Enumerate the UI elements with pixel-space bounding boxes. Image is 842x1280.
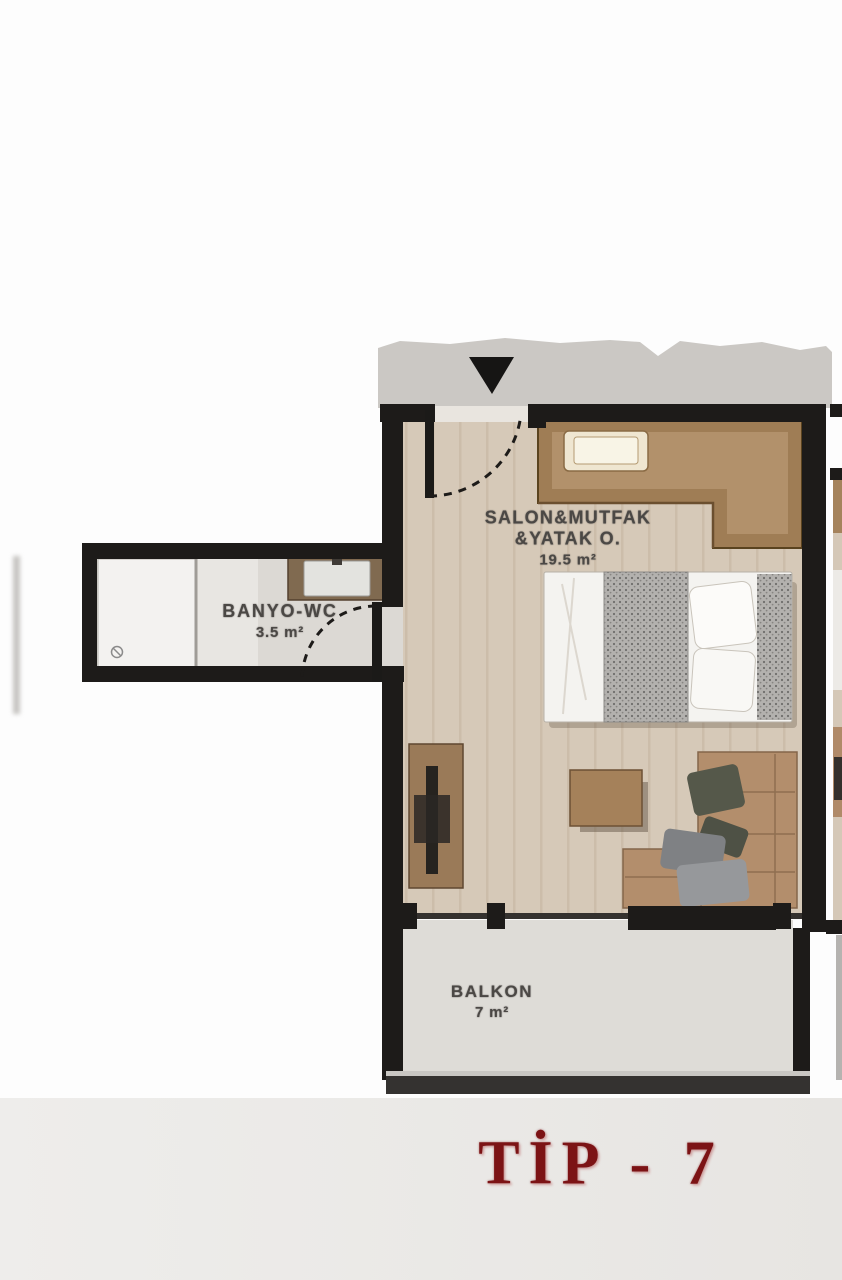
balcony-post <box>773 903 791 929</box>
bathroom-door-leaf <box>372 602 382 682</box>
wall-stub-right-mid <box>830 468 842 480</box>
living-room-name2: &YATAK O. <box>485 529 652 550</box>
wall-stub-right-low <box>826 920 842 934</box>
balcony-rail <box>386 1076 810 1094</box>
balcony-post <box>403 903 417 929</box>
entry-threshold <box>434 406 528 422</box>
bathroom-wall-top <box>82 543 384 559</box>
balcony-rail-highlight <box>386 1071 810 1076</box>
bathroom-sink <box>304 561 370 596</box>
scan-strip <box>378 338 832 408</box>
neighbor-counter-sliver <box>833 478 842 533</box>
balcony-window-sill <box>403 913 628 919</box>
wall-stub-top-right <box>830 404 842 417</box>
bathroom-wall-left <box>82 543 97 682</box>
neighbor-balcony-sliver <box>836 935 842 1080</box>
wall-left-lower <box>382 681 403 1080</box>
living-room-area: 19.5 m² <box>485 551 652 571</box>
neighbor-bed-sliver <box>833 570 842 690</box>
plan-title: TİP - 7 <box>478 1129 724 1200</box>
balcony-wall-right <box>793 928 810 1080</box>
bed-pillow <box>688 580 757 649</box>
bathroom-label: BANYO-WC 3.5 m² <box>222 601 337 643</box>
balcony-window-sill <box>791 913 802 919</box>
wall-top-right <box>534 404 826 422</box>
tv-stand <box>414 795 450 843</box>
coffee-table <box>570 770 642 826</box>
living-room-label: SALON&MUTFAK &YATAK O. 19.5 m² <box>485 508 652 571</box>
bathroom-wall-bottom <box>82 666 404 682</box>
balcony-area: 7 m² <box>451 1003 533 1023</box>
balcony-name: BALKON <box>451 981 533 1002</box>
living-room-name: SALON&MUTFAK <box>485 508 652 529</box>
bed-pillow <box>690 648 756 712</box>
wall-left-upper <box>382 404 403 607</box>
sofa-pillow <box>676 858 750 907</box>
floorplan-page: SALON&MUTFAK &YATAK O. 19.5 m² BANYO-WC … <box>0 0 842 1280</box>
wall-right <box>802 404 826 932</box>
kitchen-sink-basin <box>574 437 638 464</box>
door-stop <box>528 404 546 428</box>
neighbor-tv-sliver <box>834 757 842 800</box>
bed-blanket <box>604 572 688 722</box>
entry-door-leaf <box>425 410 434 498</box>
floorplan-drawing <box>0 0 842 1280</box>
bed-runner <box>757 574 792 720</box>
balcony-post <box>487 903 505 929</box>
bathroom-name: BANYO-WC <box>222 601 337 622</box>
balcony-label: BALKON 7 m² <box>451 981 533 1023</box>
neighbor-floor-sliver <box>833 478 842 930</box>
balcony-solid-wall <box>628 906 776 930</box>
bathroom-area: 3.5 m² <box>222 623 337 643</box>
